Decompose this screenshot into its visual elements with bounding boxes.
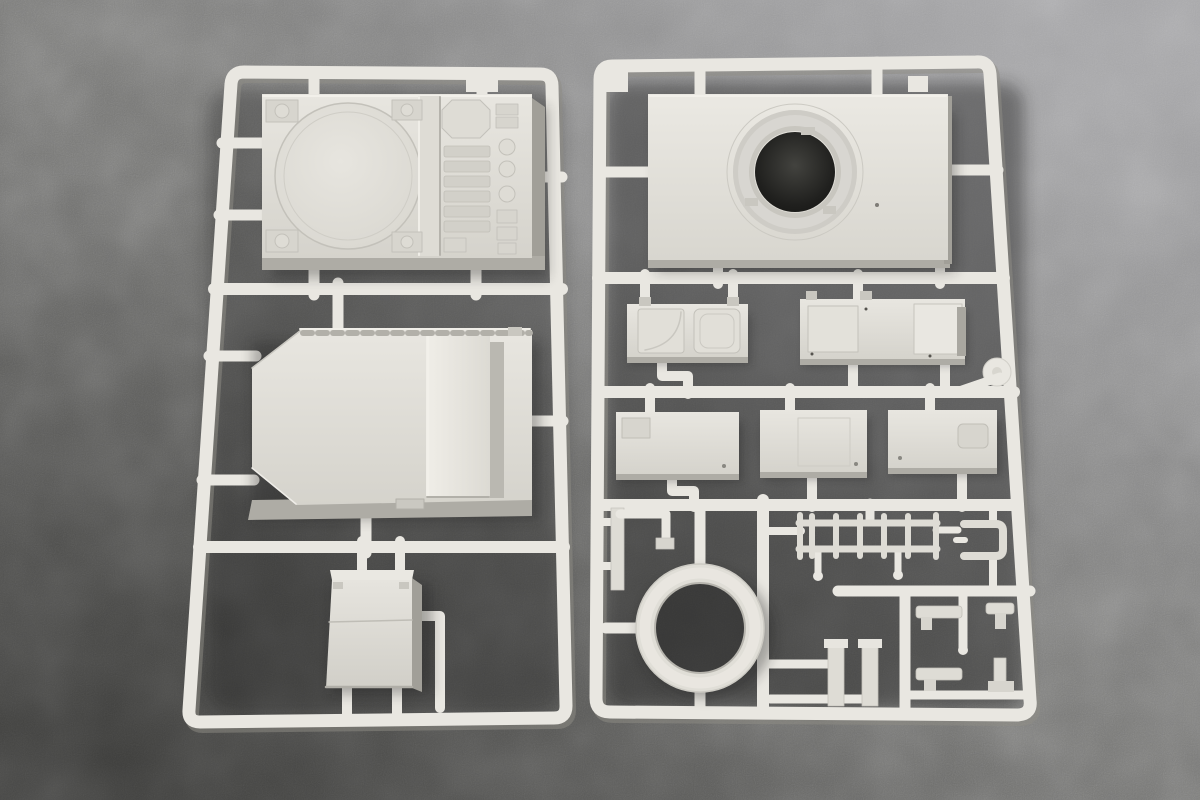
corner-pad-bolt bbox=[401, 104, 413, 116]
turntable-disc bbox=[275, 103, 421, 249]
surface-speck bbox=[875, 203, 879, 207]
corner-pad-bolt bbox=[275, 234, 289, 248]
hatch-right bbox=[694, 309, 740, 353]
bolt-dot bbox=[929, 355, 932, 358]
ring-lug bbox=[745, 198, 758, 206]
corner-notch bbox=[399, 582, 409, 589]
access-square bbox=[622, 418, 650, 438]
detail-block bbox=[496, 117, 518, 128]
post-part bbox=[862, 644, 878, 706]
periscope-ring bbox=[499, 161, 515, 177]
bolt-dot bbox=[898, 456, 902, 460]
post-cap bbox=[858, 639, 882, 648]
strip-part bbox=[611, 508, 624, 590]
vent-slat bbox=[444, 221, 490, 232]
corner-pad-bolt bbox=[275, 104, 289, 118]
vent-slat bbox=[444, 191, 490, 202]
corner-pad-bolt bbox=[401, 236, 413, 248]
hatch-square bbox=[808, 306, 858, 352]
bracket-part bbox=[916, 668, 962, 680]
ring-lug bbox=[801, 127, 815, 135]
gate-cap bbox=[958, 645, 968, 655]
stowage-box-side bbox=[412, 578, 422, 692]
hinge-tab bbox=[639, 297, 651, 306]
bracket-flange bbox=[924, 679, 936, 691]
detail-block bbox=[498, 243, 516, 254]
raised-plate-shade bbox=[957, 307, 966, 356]
corner-notch bbox=[508, 327, 522, 336]
hinge-tab bbox=[806, 291, 817, 300]
bolt-dot bbox=[722, 464, 726, 468]
detail-block bbox=[496, 104, 518, 115]
hinge-tab bbox=[860, 291, 872, 300]
side-panel-2 bbox=[760, 410, 867, 472]
vent-slat bbox=[444, 206, 490, 217]
detail-block bbox=[497, 227, 517, 240]
access-square bbox=[958, 424, 988, 448]
vent-slat bbox=[444, 161, 490, 172]
periscope-ring bbox=[499, 186, 515, 202]
octagon-hatch bbox=[442, 100, 490, 138]
vent-slat bbox=[444, 146, 490, 157]
model-kit-sprues-photo bbox=[0, 0, 1200, 800]
rod-flange bbox=[921, 617, 932, 630]
post-cap bbox=[824, 639, 848, 648]
stowage-box bbox=[326, 580, 412, 688]
photo-frame bbox=[0, 0, 1200, 800]
hinge-tab bbox=[727, 297, 739, 306]
roof-panel-side-right bbox=[532, 98, 545, 266]
right-frame-corner-step bbox=[598, 68, 628, 92]
vent-foot bbox=[444, 238, 466, 252]
bolt-dot bbox=[811, 353, 814, 356]
elbow-part bbox=[986, 603, 1014, 614]
bolt-dot bbox=[865, 308, 868, 311]
angle-foot bbox=[988, 681, 1014, 692]
post-part bbox=[828, 644, 844, 706]
gate-cap bbox=[813, 571, 823, 581]
vent-slat bbox=[444, 176, 490, 187]
turret-ring-opening bbox=[755, 132, 835, 212]
stowage-box-cap bbox=[330, 570, 414, 580]
plank-cast-shadow bbox=[490, 342, 504, 498]
bolt-dot bbox=[854, 462, 858, 466]
raised-plate bbox=[914, 304, 962, 354]
roof-panel-side-bottom bbox=[262, 256, 545, 270]
right-frame-top-notch bbox=[908, 76, 928, 92]
rod-part bbox=[916, 606, 962, 618]
small-foot-part bbox=[656, 538, 674, 549]
hatch-left bbox=[638, 309, 684, 353]
raised-plank bbox=[426, 336, 490, 498]
detail-block bbox=[497, 210, 517, 223]
elbow-flange bbox=[995, 613, 1006, 629]
gate-cap bbox=[893, 570, 903, 580]
corner-notch bbox=[333, 582, 343, 589]
periscope-ring bbox=[499, 139, 515, 155]
ring-lug bbox=[823, 206, 836, 214]
latch-detail bbox=[396, 499, 424, 509]
